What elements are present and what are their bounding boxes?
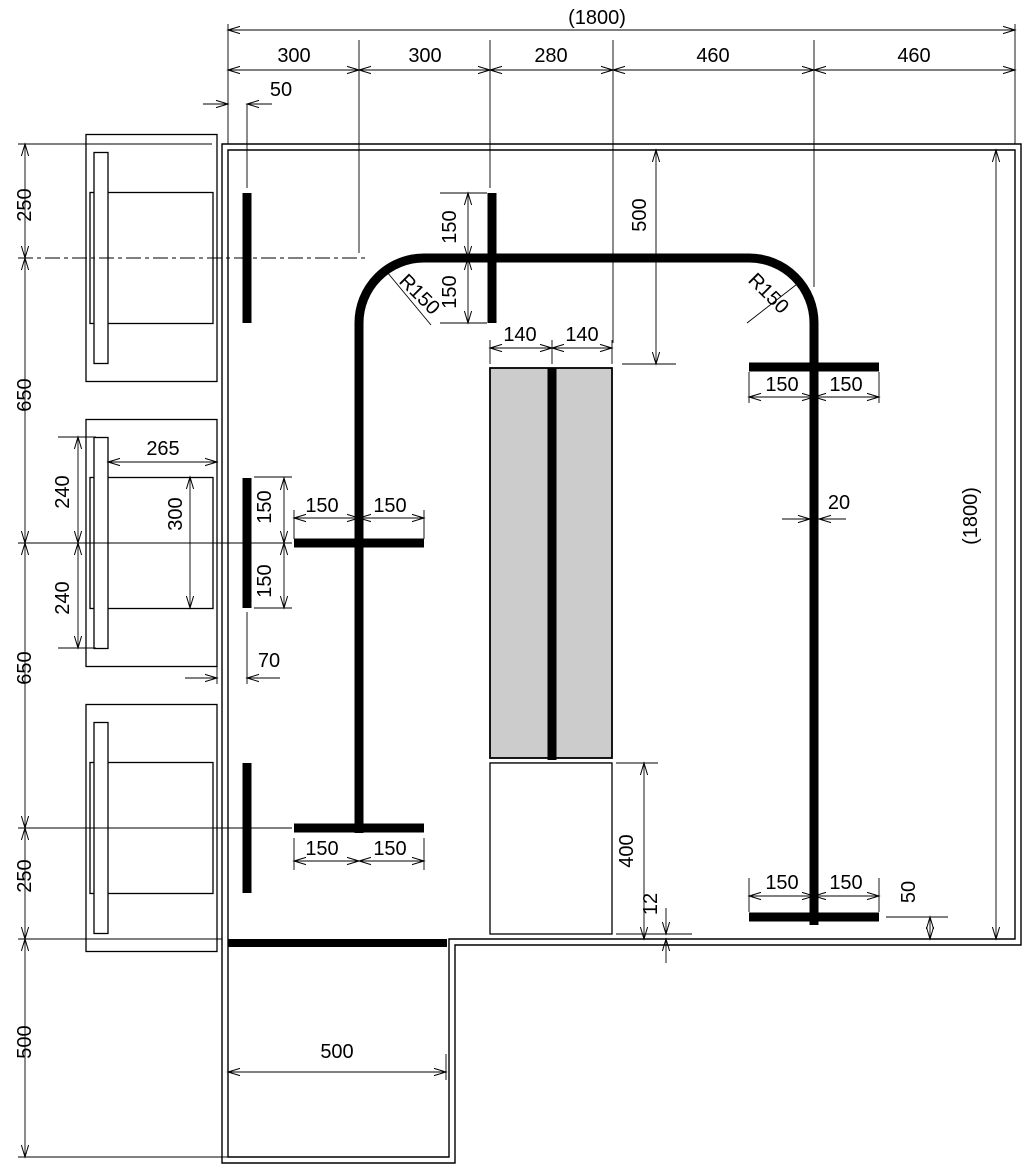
label-240-upper: 240: [52, 475, 74, 508]
label-tick-150-upper: 150: [254, 490, 276, 523]
label-top-280: 280: [534, 45, 567, 67]
label-left-650-lower: 650: [14, 651, 36, 684]
label-radius-right: R150: [744, 269, 793, 318]
cad-floor-plan-page: (1800) 300 300 280 460 460 50 250 650 65…: [0, 0, 1024, 1165]
label-400: 400: [616, 834, 638, 867]
label-crossmid-150-right: 150: [373, 495, 406, 517]
unit-white-body: [490, 763, 612, 934]
label-crossmid-150-left: 150: [305, 495, 338, 517]
label-drop-500: 500: [629, 198, 651, 231]
label-crossbottom-150-right: 150: [373, 838, 406, 860]
label-rcb-150-left: 150: [765, 872, 798, 894]
label-top-460: 460: [696, 45, 729, 67]
label-rct-150-left: 150: [765, 374, 798, 396]
wall-outer-line: [222, 144, 1021, 1163]
label-ext-500: 500: [320, 1041, 353, 1063]
label-rcb-150-right: 150: [829, 872, 862, 894]
label-140-right: 140: [565, 324, 598, 346]
label-left-250-top: 250: [14, 188, 36, 221]
label-left-650-upper: 650: [14, 378, 36, 411]
room-walls: [222, 144, 1021, 1163]
label-top-460-red: 460: [897, 45, 930, 67]
label-left-250-bottom: 250: [14, 859, 36, 892]
label-12: 12: [640, 893, 662, 915]
label-top-300-red: 300: [277, 45, 310, 67]
label-top-50: 50: [270, 79, 292, 101]
label-70: 70: [258, 650, 280, 672]
label-top-overall: (1800): [568, 7, 626, 29]
center-unit: [490, 368, 612, 934]
label-top-300: 300: [408, 45, 441, 67]
label-right-overall: (1800): [960, 487, 982, 545]
wall-inner-line: [228, 150, 1015, 1157]
label-radius-left: R150: [395, 270, 444, 319]
label-300-seat: 300: [165, 497, 187, 530]
label-toptick-150-upper: 150: [439, 210, 461, 243]
label-240-lower: 240: [52, 581, 74, 614]
label-tick-150-lower: 150: [254, 564, 276, 597]
label-265: 265: [146, 438, 179, 460]
cad-floor-plan-drawing: (1800) 300 300 280 460 460 50 250 650 65…: [0, 0, 1024, 1165]
label-20: 20: [828, 492, 850, 514]
label-140-left: 140: [503, 324, 536, 346]
label-50-bottom: 50: [898, 881, 920, 903]
label-rct-150-right: 150: [829, 374, 862, 396]
label-crossbottom-150-left: 150: [305, 838, 338, 860]
label-left-500: 500: [14, 1025, 36, 1058]
